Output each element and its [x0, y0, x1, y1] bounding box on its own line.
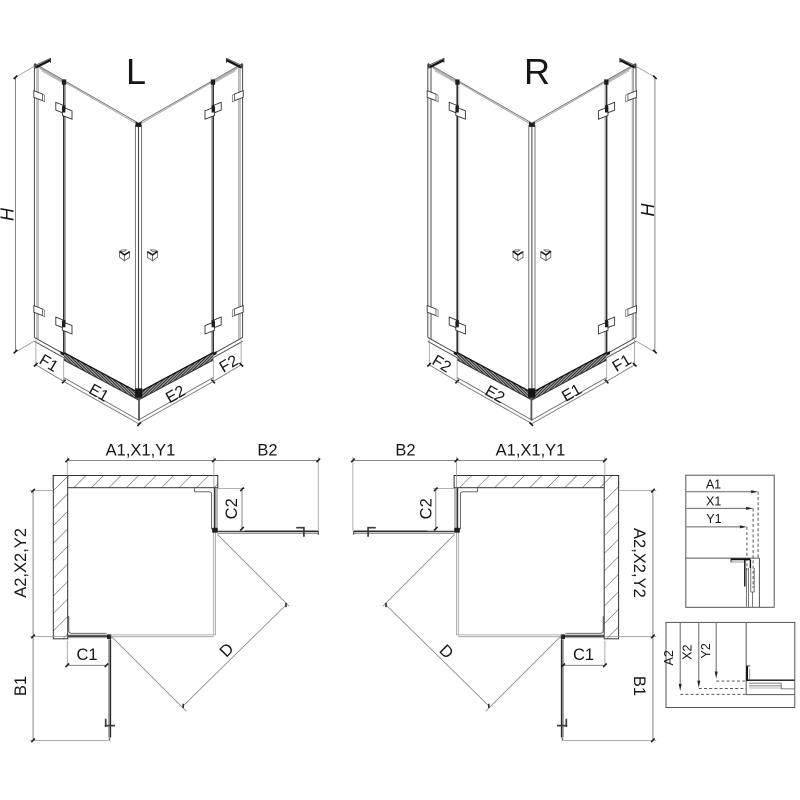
svg-text:F2: F2 [429, 352, 454, 376]
svg-text:C2: C2 [418, 498, 436, 519]
svg-text:H: H [0, 207, 18, 221]
svg-text:L: L [126, 51, 146, 92]
svg-text:X1: X1 [706, 495, 721, 509]
svg-text:F1: F1 [610, 352, 635, 376]
svg-text:H: H [638, 203, 658, 217]
svg-text:C1: C1 [573, 646, 594, 664]
svg-text:C2: C2 [223, 498, 241, 519]
svg-text:Y1: Y1 [706, 512, 721, 526]
svg-text:X2: X2 [680, 645, 694, 660]
svg-text:R: R [524, 51, 550, 92]
svg-text:D: D [435, 641, 456, 662]
svg-text:B1: B1 [12, 676, 30, 696]
svg-text:C1: C1 [76, 646, 97, 664]
svg-text:B1: B1 [630, 676, 648, 696]
svg-text:A2,X2,Y2: A2,X2,Y2 [630, 528, 648, 598]
svg-text:B2: B2 [257, 442, 277, 460]
svg-text:A2,X2,Y2: A2,X2,Y2 [12, 528, 30, 598]
svg-text:F2: F2 [217, 352, 242, 376]
svg-text:Y2: Y2 [699, 643, 713, 658]
svg-text:A1: A1 [706, 478, 721, 492]
svg-text:D: D [216, 640, 237, 661]
svg-text:F1: F1 [36, 352, 61, 376]
svg-text:A1,X1,Y1: A1,X1,Y1 [496, 442, 566, 460]
svg-text:A1,X1,Y1: A1,X1,Y1 [106, 442, 176, 460]
svg-text:A2: A2 [662, 650, 676, 665]
svg-text:B2: B2 [395, 442, 415, 460]
